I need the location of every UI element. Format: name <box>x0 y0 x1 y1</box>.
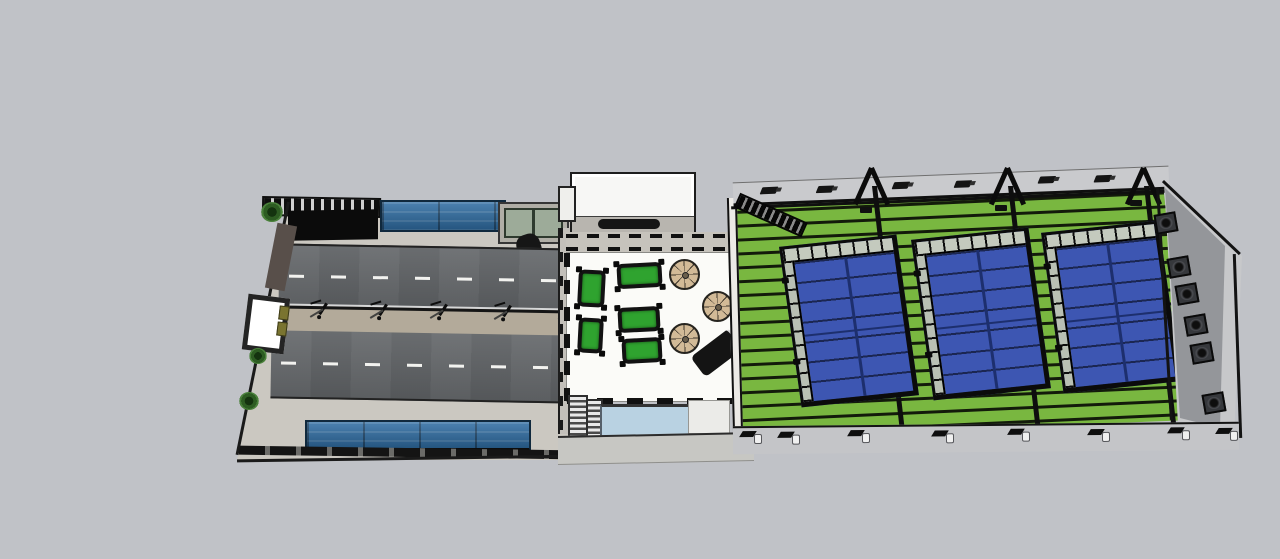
pool-table-felt <box>581 274 601 304</box>
wall-bracket <box>995 205 1007 211</box>
court-surface <box>1056 238 1175 387</box>
court-door-knob <box>925 351 933 358</box>
street-light <box>369 300 389 326</box>
brace-bar <box>1005 167 1026 206</box>
pool-table-leg <box>659 284 665 290</box>
footing-cylinder <box>754 434 762 444</box>
pool-table-felt <box>622 310 657 329</box>
hall-bottom-apron <box>733 422 1239 454</box>
billboard-panel <box>278 305 290 320</box>
pool-deck <box>688 400 730 434</box>
pool-table-felt <box>621 266 659 285</box>
column-footing <box>1089 429 1115 441</box>
pool-table <box>616 262 662 289</box>
lane-marking <box>281 362 569 370</box>
light-arm <box>310 300 321 305</box>
court-door-knob <box>781 277 789 284</box>
clubhouse-building <box>570 172 696 234</box>
terrace-lower-platform <box>558 432 754 465</box>
plunge-pool <box>600 404 690 437</box>
footing-cylinder <box>1182 430 1190 440</box>
padel-court <box>911 228 1051 401</box>
column-footing <box>1169 427 1195 439</box>
column-footing <box>1217 428 1243 440</box>
light-base <box>437 316 441 320</box>
footing-cylinder <box>792 435 800 445</box>
court-door-knob <box>913 270 921 277</box>
roof-a-brace <box>1117 168 1171 206</box>
light-arm <box>370 301 381 306</box>
pool-table-leg <box>601 316 607 322</box>
court-door-knob <box>793 358 801 365</box>
roof-light-bracket <box>1037 176 1056 184</box>
footing-cylinder <box>1230 431 1238 441</box>
column-footing <box>933 430 959 442</box>
light-base <box>501 317 505 321</box>
pool-table-leg <box>613 261 619 267</box>
patio-umbrella <box>669 259 700 290</box>
exhaust-fan <box>1174 282 1199 306</box>
court-surface <box>926 245 1045 394</box>
site-model-scene <box>0 0 1280 559</box>
palm-tree <box>261 202 283 222</box>
street-section <box>237 196 577 464</box>
padel-hall-section <box>728 168 1248 460</box>
walkway-joint-dashes <box>566 234 746 238</box>
footing-cylinder <box>862 433 870 443</box>
pool-table-felt <box>626 341 659 360</box>
street-light <box>493 301 513 327</box>
exhaust-fan <box>1189 341 1214 365</box>
pool-table-leg <box>576 314 582 320</box>
pool-table-leg <box>615 286 621 292</box>
exhaust-fan <box>1183 313 1208 337</box>
street-light <box>309 299 329 325</box>
court-center-line <box>976 250 998 389</box>
patio-umbrella <box>669 323 700 354</box>
shrub <box>249 348 267 364</box>
pool-table <box>577 269 606 307</box>
pool-table-leg <box>601 305 607 311</box>
street-light <box>429 300 449 326</box>
wall-bracket <box>860 207 872 213</box>
pool-table-felt <box>581 322 599 350</box>
column-footing <box>741 431 767 443</box>
roof-light-bracket <box>1093 175 1112 183</box>
pool-table <box>621 337 662 364</box>
pool-table-leg <box>574 349 580 355</box>
court-door-knob <box>1055 344 1063 351</box>
light-base <box>377 316 381 320</box>
parked-white-van <box>408 222 425 255</box>
pool-table-leg <box>599 350 605 356</box>
footing-cylinder <box>946 433 954 443</box>
exhaust-fan <box>1166 255 1191 279</box>
pool-table-leg <box>658 334 664 340</box>
parked-dark-car <box>428 225 448 257</box>
court-door-knob <box>1043 263 1051 270</box>
terrace-section <box>558 170 754 462</box>
column-footing <box>849 430 875 442</box>
column-footing <box>1009 429 1035 441</box>
roof-light-bracket <box>760 187 779 195</box>
roof-a-brace <box>981 168 1035 206</box>
road-lower-carriageway <box>270 330 577 403</box>
pool-table-leg <box>618 336 624 342</box>
pool-table-leg <box>658 259 664 265</box>
pool-table-leg <box>659 359 665 365</box>
pool-table <box>577 317 604 353</box>
walkway-joint-dashes <box>566 247 746 251</box>
pool-table-leg <box>603 268 609 274</box>
court-surface <box>794 252 913 401</box>
pool-table-leg <box>614 305 620 311</box>
lane-marking <box>289 275 569 282</box>
column-footing <box>779 432 805 444</box>
light-base <box>317 315 321 319</box>
billboard-panel <box>276 321 288 336</box>
terrace-edge-dashes <box>564 253 570 401</box>
footing-cylinder <box>1102 432 1110 442</box>
exhaust-fan <box>1153 211 1178 235</box>
light-arm <box>430 301 441 306</box>
wall-bracket <box>1130 200 1142 206</box>
roof-light-bracket <box>954 180 973 188</box>
court-center-line <box>1106 243 1128 382</box>
pool-table-leg <box>620 361 626 367</box>
stair-flight <box>568 395 588 441</box>
court-center-line <box>844 257 866 396</box>
dark-paved-area <box>288 209 378 241</box>
pool-table-leg <box>574 303 580 309</box>
exhaust-fan <box>1201 391 1226 415</box>
roof-a-brace <box>845 168 899 206</box>
roof-light-bracket <box>816 185 835 193</box>
clubhouse-sign-band <box>598 219 660 229</box>
pool-table <box>617 306 660 333</box>
clubhouse-annex <box>558 186 576 222</box>
shrub <box>239 392 259 410</box>
terrace-walkway <box>566 232 746 252</box>
padel-court <box>779 235 919 408</box>
light-arm <box>494 302 505 307</box>
footing-cylinder <box>1022 432 1030 442</box>
pool-table-leg <box>656 303 662 309</box>
pool-table-leg <box>576 266 582 272</box>
brace-bar <box>869 167 890 206</box>
